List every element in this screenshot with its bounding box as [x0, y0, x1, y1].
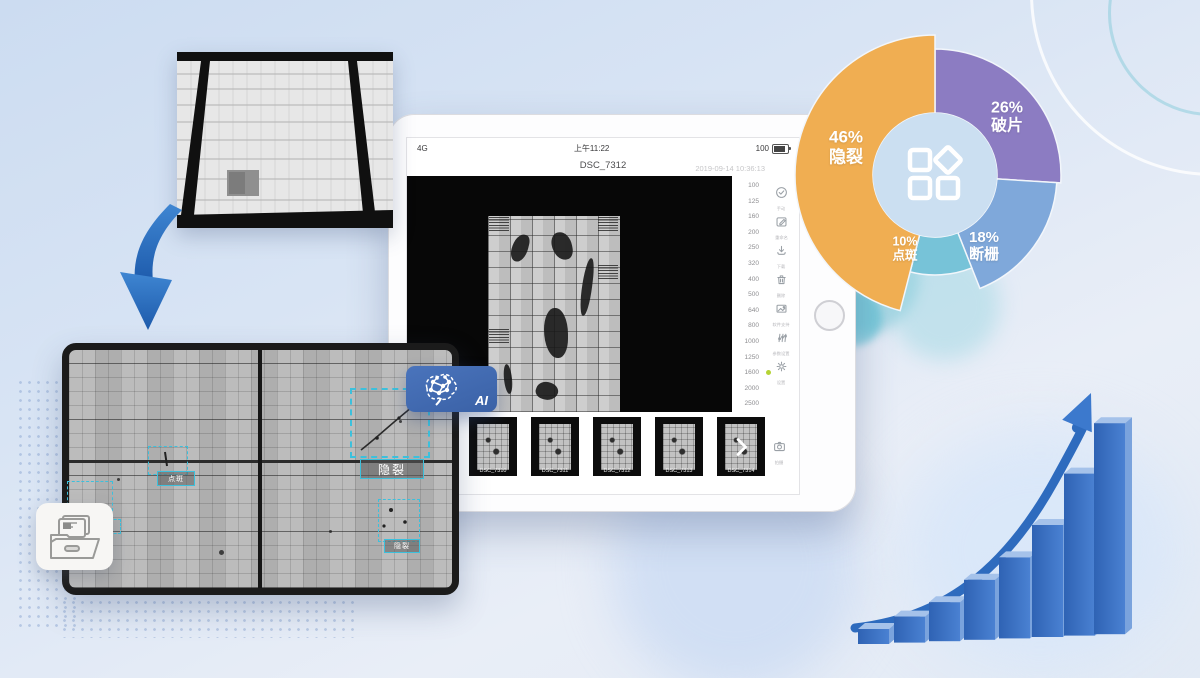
donut-label: 10%点斑 [892, 235, 917, 264]
iso-scale-list: 1001251602002503204005006408001000125016… [732, 176, 764, 412]
donut-label: 26%破片 [991, 100, 1023, 137]
thumbnail-image [539, 424, 571, 470]
bar-3 [929, 602, 960, 641]
iso-value[interactable]: 2000 [732, 385, 764, 401]
iso-value[interactable]: 320 [732, 260, 764, 276]
bar-8 [1094, 423, 1125, 634]
iso-value[interactable]: 200 [732, 229, 764, 245]
camera-icon [772, 440, 787, 458]
ai-label: AI [475, 393, 488, 408]
ai-badge: AI [406, 366, 497, 412]
adjust-icon [775, 331, 788, 349]
filmstrip-thumbnail[interactable]: DSC_7312 [593, 417, 641, 476]
settings-button[interactable]: 设置 [775, 360, 788, 389]
tool-label: 软件支持 [773, 322, 790, 328]
iso-value[interactable]: 1600 [732, 369, 764, 385]
bar-7 [1064, 474, 1095, 636]
donut-label: 18%断栅 [969, 229, 999, 264]
el-panel-closeup: 点斑 隐裂 隐裂 [62, 343, 459, 595]
defect-label: 点斑 [157, 471, 195, 486]
iso-value[interactable]: 800 [732, 322, 764, 338]
filmstrip-thumbnail[interactable]: DSC_7313 [655, 417, 703, 476]
iso-value[interactable]: 100 [732, 182, 764, 198]
growth-bar-chart [845, 385, 1200, 665]
el-inspection-image [488, 216, 620, 412]
filmstrip-thumbnail[interactable]: DSC_7310 [469, 417, 517, 476]
clock-label: 上午11:22 [574, 143, 609, 154]
thumbnail-caption: DSC_7313 [655, 468, 703, 474]
app-screen: 4G 上午11:22 100 DSC_7312 2019-09-14 10:36… [407, 138, 799, 494]
thumbnail-image [601, 424, 633, 470]
iso-value[interactable]: 160 [732, 213, 764, 229]
tool-label: 参数设置 [773, 351, 790, 357]
iso-value[interactable]: 1250 [732, 354, 764, 370]
defect-label: 隐裂 [384, 539, 420, 553]
iso-value[interactable]: 1000 [732, 338, 764, 354]
thumbnail-caption: DSC_7310 [469, 468, 517, 474]
thumbnail-caption: DSC_7312 [593, 468, 641, 474]
bar-1 [858, 629, 889, 644]
bar-5 [999, 557, 1030, 638]
thumbnail-image [663, 424, 695, 470]
filmstrip: DSC_7310DSC_7311DSC_7312DSC_7313DSC_7314… [407, 412, 799, 494]
defect-bbox [378, 499, 420, 542]
solar-array-photo [177, 52, 393, 228]
iso-value[interactable]: 250 [732, 244, 764, 260]
defect-donut-chart: 26%破片18%断栅10%点斑46%隐裂 [780, 12, 1100, 312]
settings-icon [775, 360, 788, 378]
curved-arrow-down [108, 204, 198, 334]
bar-8 [1125, 417, 1132, 634]
promo-composite: 4G 上午11:22 100 DSC_7312 2019-09-14 10:36… [0, 0, 1200, 678]
title-bar: DSC_7312 2019-09-14 10:36:13 [407, 156, 799, 176]
iso-value[interactable]: 400 [732, 276, 764, 292]
thumbnail-image [477, 424, 509, 470]
donut-label: 46%隐裂 [829, 127, 863, 166]
camera-button[interactable]: 拍摄 [772, 440, 787, 466]
filmstrip-thumbnail[interactable]: DSC_7311 [531, 417, 579, 476]
defect-label: 隐裂 [360, 459, 424, 479]
bar-2 [894, 617, 925, 643]
status-bar: 4G 上午11:22 100 [407, 138, 799, 156]
camera-label: 拍摄 [775, 460, 784, 466]
chevron-right-icon[interactable] [717, 417, 765, 476]
ai-brain-icon [420, 371, 460, 412]
tool-label: 设置 [777, 380, 786, 386]
adjust-button[interactable]: 参数设置 [771, 331, 791, 360]
iso-value[interactable]: 640 [732, 307, 764, 323]
bar-4 [964, 580, 995, 640]
carrier-label: 4G [417, 144, 428, 153]
thumbnail-caption: DSC_7311 [531, 468, 579, 474]
file-import-card [36, 503, 113, 570]
folder-documents-icon [47, 513, 103, 561]
bar-6 [1032, 525, 1063, 637]
iso-value[interactable]: 500 [732, 291, 764, 307]
capture-timestamp: 2019-09-14 10:36:13 [695, 164, 765, 173]
iso-value[interactable]: 125 [732, 198, 764, 214]
dot-pattern-decoration [60, 598, 360, 638]
filmstrip-thumbnail[interactable]: DSC_7314 [717, 417, 765, 476]
